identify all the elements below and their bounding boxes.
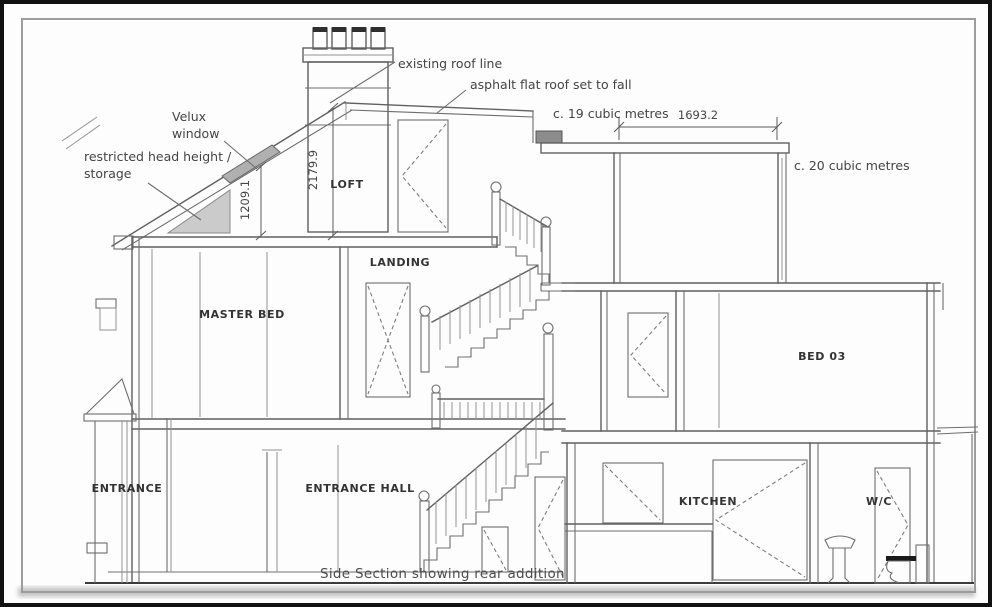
label-velux-2: window xyxy=(172,126,219,141)
section-drawing: existing roof line asphalt flat roof set… xyxy=(0,0,992,607)
label-velux-1: Velux xyxy=(172,109,206,124)
label-room-entrance-hall: ENTRANCE HALL xyxy=(305,482,414,495)
label-room-entrance: ENTRANCE xyxy=(92,482,163,495)
label-room-loft: LOFT xyxy=(330,178,363,191)
label-room-master-bed: MASTER BED xyxy=(199,308,285,321)
dim-flat-roof-width: 1693.2 xyxy=(678,108,718,122)
label-room-kitchen: KITCHEN xyxy=(679,495,737,508)
label-vol20: c. 20 cubic metres xyxy=(794,158,910,173)
dim-restricted-height: 1209.1 xyxy=(238,180,252,220)
scan-shadow xyxy=(18,587,975,597)
label-room-landing: LANDING xyxy=(370,256,430,269)
label-existing-roof-line: existing roof line xyxy=(398,56,502,71)
drawing-frame xyxy=(2,2,990,605)
architectural-section-page: existing roof line asphalt flat roof set… xyxy=(0,0,992,607)
drawing-caption: Side Section showing rear addition xyxy=(320,566,565,582)
roof-kerb xyxy=(536,131,562,143)
label-vol19: c. 19 cubic metres xyxy=(553,106,669,121)
label-asphalt-roof: asphalt flat roof set to fall xyxy=(470,77,632,92)
label-restricted-1: restricted head height / xyxy=(84,149,232,164)
label-restricted-2: storage xyxy=(84,166,132,181)
label-room-wc: W/C xyxy=(866,495,892,508)
dim-loft-height: 2179.9 xyxy=(306,150,320,190)
label-room-bed3: BED 03 xyxy=(798,350,846,363)
